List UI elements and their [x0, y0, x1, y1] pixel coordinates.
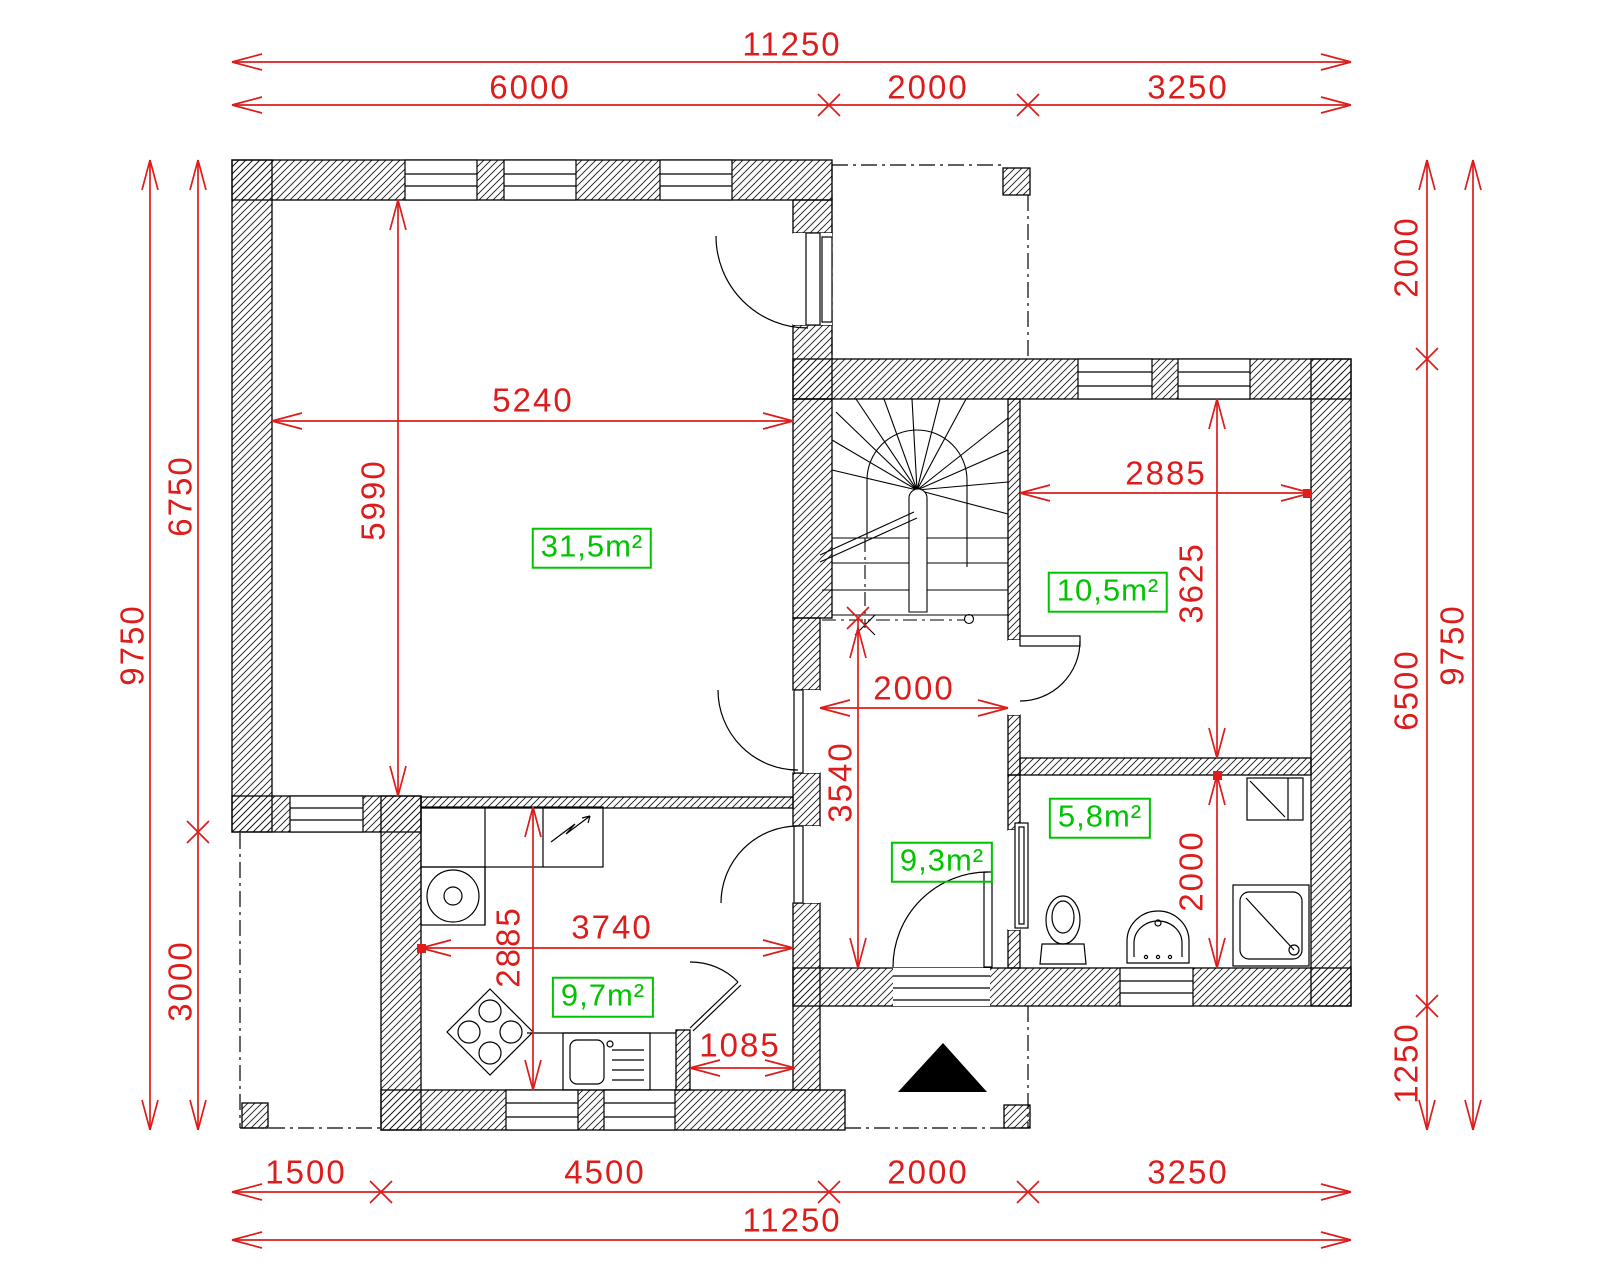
wall-partition-living-kitchen [421, 797, 793, 808]
area-label-bathroom: 5,8m² [1049, 798, 1151, 839]
entrance-arrow [898, 1043, 987, 1092]
window-bedroom-1 [1078, 359, 1152, 399]
wall-hall-left-c [793, 903, 820, 1090]
stair-rail-center [909, 489, 927, 612]
wall-living-right-a [793, 200, 832, 233]
dim-right-2: 6500 [1390, 649, 1423, 730]
window-bathroom [1120, 968, 1193, 1006]
door-kitchen-hall [721, 826, 820, 903]
dim-bedroom-depth: 3625 [1175, 542, 1208, 623]
dim-bottom-1: 1500 [265, 1156, 346, 1189]
kitchen-counter [421, 807, 603, 867]
porch-top-outline [832, 165, 1028, 359]
wall-left [232, 160, 272, 832]
stair-symbol [820, 399, 1008, 635]
wall-bedroom-top [793, 359, 1351, 399]
dim-bottom-2: 4500 [564, 1156, 645, 1189]
door-living-porch [716, 233, 832, 328]
porch-pier-top-right [1003, 168, 1030, 195]
washbasin-symbol [1127, 911, 1189, 963]
area-label-hall: 9,3m² [891, 842, 993, 883]
dim-bottom-3: 2000 [887, 1156, 968, 1189]
stair-rail-diagonal [820, 512, 917, 562]
area-label-kitchen: 9,7m² [552, 977, 654, 1018]
toilet-symbol [1040, 896, 1086, 964]
wall-hall-left-a [793, 618, 820, 690]
window-living-2 [504, 160, 576, 200]
window-living-3 [660, 160, 732, 200]
fridge-symbol [421, 867, 485, 925]
door-pantry [690, 962, 741, 1031]
dim-left-1: 6750 [164, 455, 197, 536]
wall-hall-left-b [793, 773, 820, 826]
dim-left-total: 9750 [116, 604, 149, 685]
dim-bottom-4: 3250 [1147, 1156, 1228, 1189]
dim-hall-width: 2000 [873, 672, 954, 705]
dim-living-depth: 5990 [357, 459, 390, 540]
sink-symbol [563, 1033, 650, 1090]
window-bedroom-2 [1178, 359, 1250, 399]
electric-symbol [551, 816, 590, 842]
shower-symbol [1233, 885, 1309, 966]
door-living-hall [718, 690, 820, 773]
dim-top-3: 3250 [1147, 71, 1228, 104]
wall-bathroom-left-b [1008, 930, 1020, 968]
wall-kitchen-left [381, 796, 421, 1130]
floor-plan-canvas: 11250 6000 2000 3250 1500 4500 2000 3250… [0, 0, 1600, 1280]
dim-top-1: 6000 [489, 71, 570, 104]
dim-right-total: 9750 [1436, 604, 1469, 685]
washing-machine-symbol [1247, 778, 1303, 820]
door-entrance [893, 872, 992, 1006]
floor-plan-drawing [0, 0, 1600, 1280]
porch-pier-bottom [1004, 1105, 1030, 1128]
wall-living-right-b [793, 325, 832, 399]
dim-bedroom-width: 2885 [1125, 457, 1206, 490]
dim-bottom-total: 11250 [742, 1204, 841, 1237]
wall-stair-left [793, 399, 832, 618]
dim-bathroom-depth: 2000 [1175, 830, 1208, 911]
terrace-left-outline [240, 833, 381, 1128]
window-living-1 [405, 160, 477, 200]
wall-bedroom-left-a [1008, 399, 1020, 640]
dim-hall-depth: 3540 [824, 741, 857, 822]
hob-symbol [447, 989, 533, 1075]
dim-right-3: 1250 [1390, 1022, 1423, 1103]
window-living-west [290, 796, 363, 832]
wall-bathroom-left-a [1008, 775, 1020, 830]
wall-bedroom-left-b [1008, 715, 1020, 775]
dim-top-2: 2000 [887, 71, 968, 104]
wall-hall-bottom [793, 968, 1351, 1006]
dim-top-total: 11250 [742, 28, 841, 61]
dim-kitchen-depth: 2885 [492, 906, 525, 987]
door-bathroom [1008, 823, 1028, 930]
door-bedroom [1008, 636, 1080, 715]
area-label-living: 31,5m² [532, 528, 652, 569]
wall-pantry-stub [676, 1030, 690, 1090]
terrace-pier-bottom-left [242, 1103, 268, 1128]
area-label-bedroom: 10,5m² [1048, 572, 1168, 613]
wall-bedroom-bottom [1020, 758, 1311, 775]
dim-kitchen-width: 3740 [571, 911, 652, 944]
stair-post [965, 615, 974, 624]
doors [690, 233, 1080, 1031]
dim-living-width: 5240 [492, 384, 573, 417]
wall-right [1311, 359, 1351, 1006]
dim-pantry-width: 1085 [699, 1029, 780, 1062]
dim-left-2: 3000 [164, 940, 197, 1021]
window-kitchen-1 [506, 1090, 578, 1130]
dim-right-1: 2000 [1390, 216, 1423, 297]
window-kitchen-2 [604, 1090, 675, 1130]
